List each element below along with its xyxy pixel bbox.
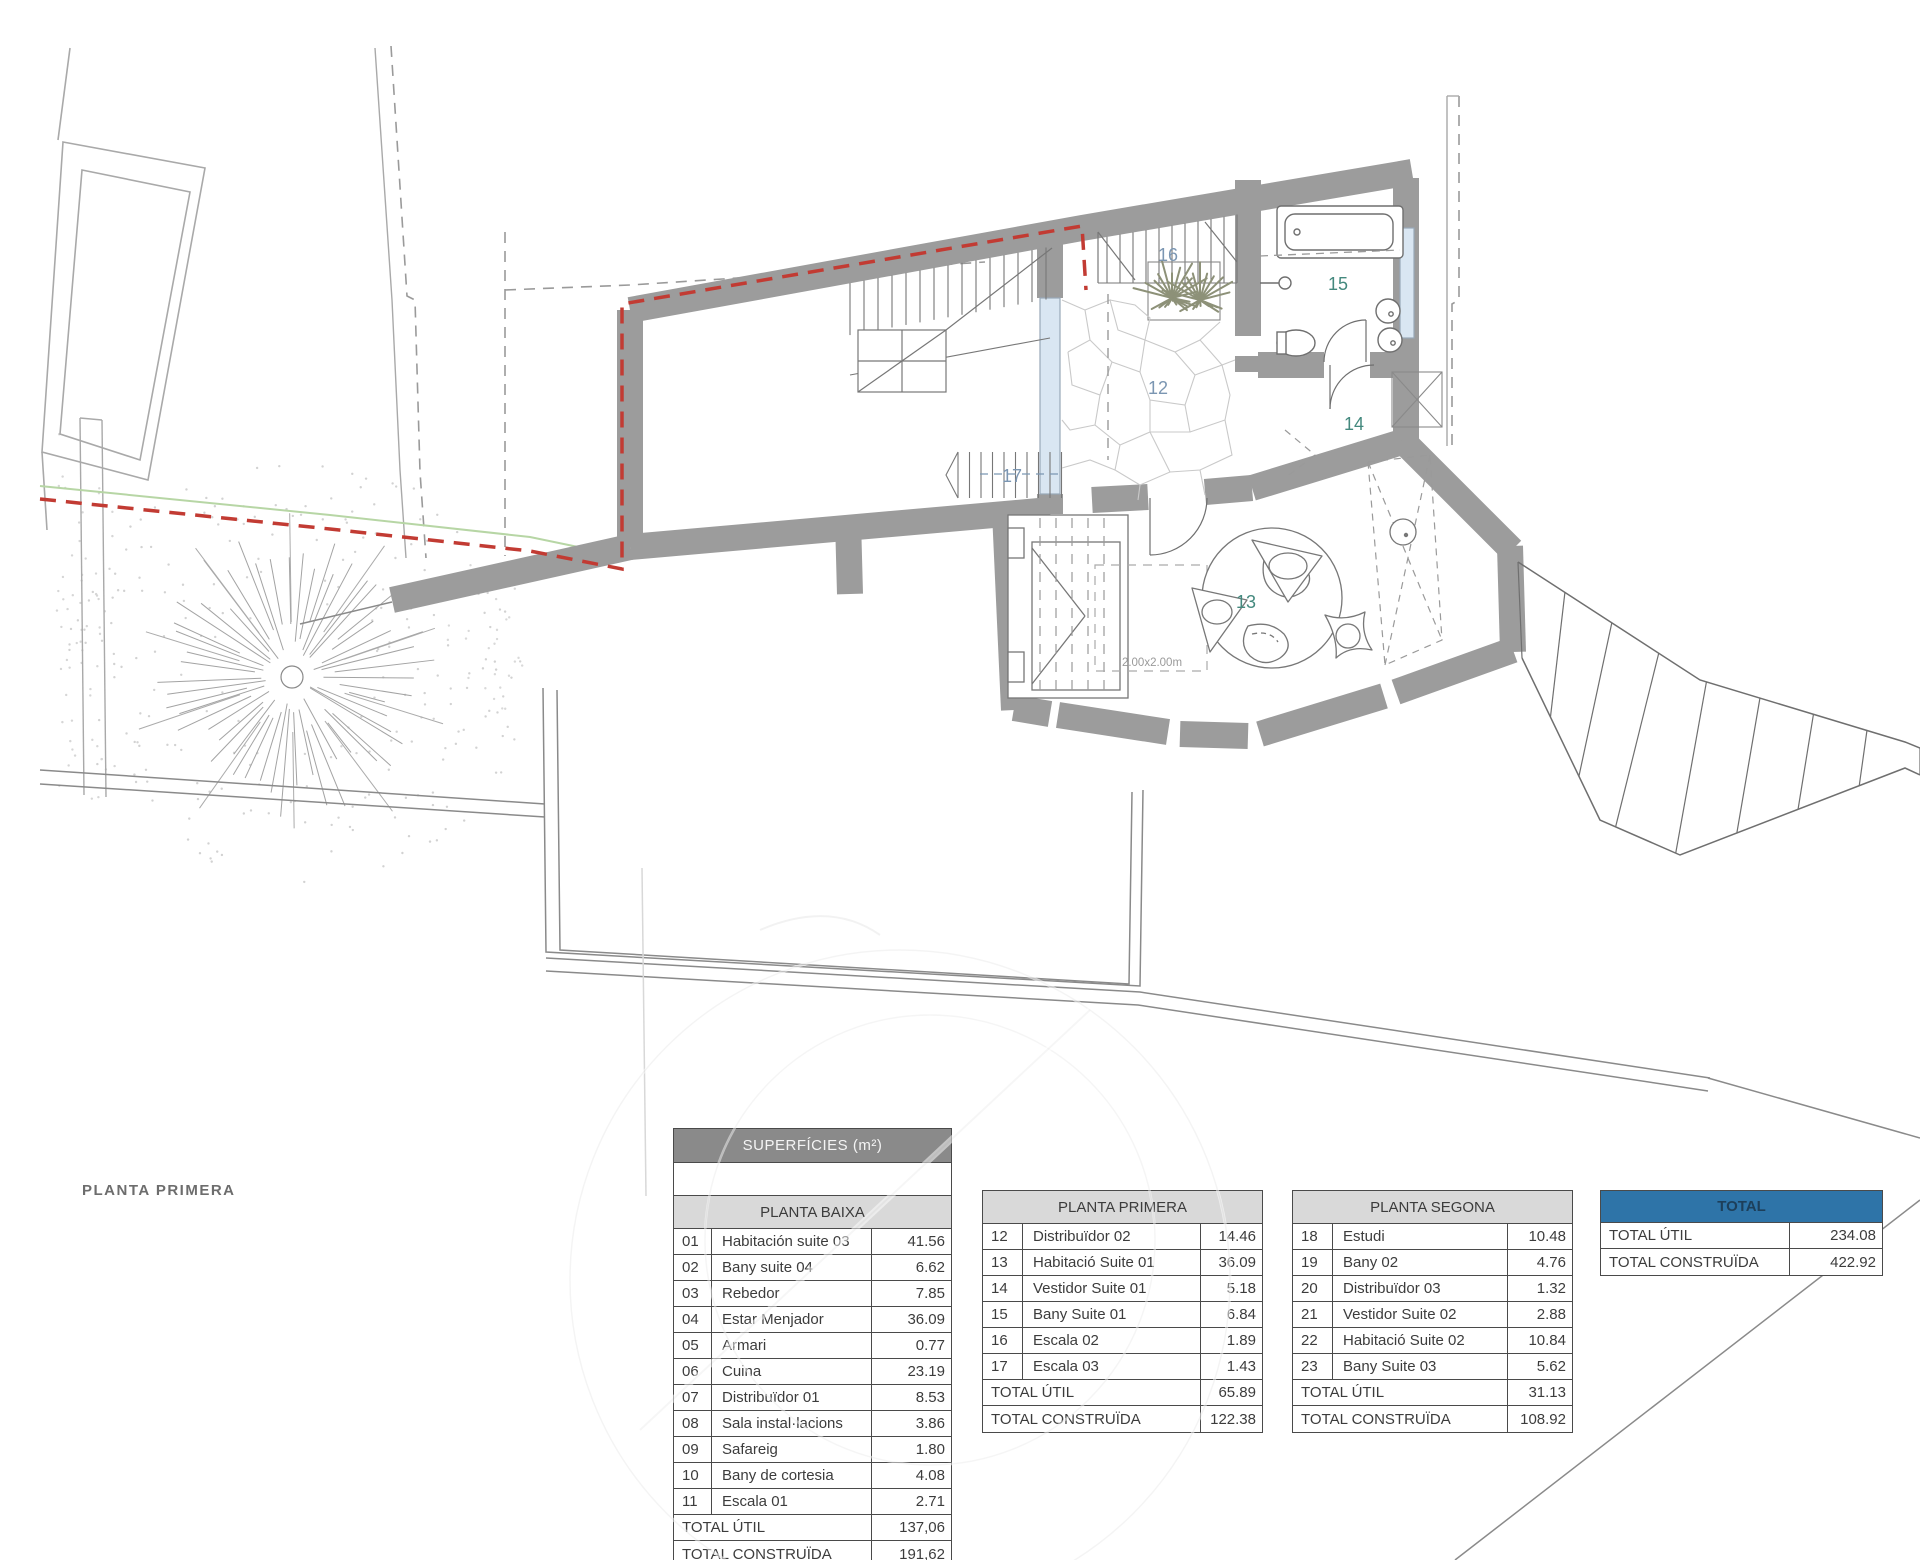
row-number: 19: [1293, 1250, 1333, 1275]
table-gap-row: [674, 1163, 951, 1196]
row-value: 23.19: [871, 1359, 951, 1384]
row-value: 8.53: [871, 1385, 951, 1410]
room-label-13: 13: [1236, 592, 1256, 612]
row-label: Distribuïdor 01: [712, 1385, 871, 1410]
table-row: 08Sala instal·lacions3.86: [674, 1411, 951, 1437]
row-number: 07: [674, 1385, 712, 1410]
table-row: 12Distribuïdor 0214.46: [983, 1224, 1262, 1250]
row-value: 2.71: [871, 1489, 951, 1514]
table-total-header: TOTAL: [1601, 1191, 1882, 1223]
row-label: Habitació Suite 02: [1333, 1328, 1507, 1353]
tree-symbol: [139, 513, 443, 828]
table-superficies-header: SUPERFÍCIES (m²): [674, 1129, 951, 1163]
row-label: Bany Suite 01: [1023, 1302, 1200, 1327]
row-number: 05: [674, 1333, 712, 1358]
ground-stipple-texture: [56, 433, 524, 883]
table-row: 13Habitació Suite 0136.09: [983, 1250, 1262, 1276]
table-row: 02Bany suite 046.62: [674, 1255, 951, 1281]
row-number: 11: [674, 1489, 712, 1514]
row-label: Vestidor Suite 02: [1333, 1302, 1507, 1327]
row-label: Armari: [712, 1333, 871, 1358]
row-number: 15: [983, 1302, 1023, 1327]
table-row: 17Escala 031.43: [983, 1354, 1262, 1380]
room-label-12: 12: [1148, 378, 1168, 398]
row-number: 04: [674, 1307, 712, 1332]
row-number: 16: [983, 1328, 1023, 1353]
row-value: 2.88: [1507, 1302, 1572, 1327]
total-label: TOTAL ÚTIL: [983, 1380, 1200, 1405]
row-label: Sala instal·lacions: [712, 1411, 871, 1436]
row-number: 01: [674, 1229, 712, 1254]
table-rows: 12Distribuïdor 0214.4613Habitació Suite …: [983, 1224, 1262, 1380]
bed: [1008, 515, 1128, 698]
table-rows: 01Habitación suite 0341.5602Bany suite 0…: [674, 1229, 951, 1515]
row-label: Safareig: [712, 1437, 871, 1462]
room-label-17: 17: [1002, 466, 1022, 486]
table-total-row: TOTAL CONSTRUÏDA122.38: [983, 1406, 1262, 1432]
total-value: 122.38: [1200, 1406, 1262, 1432]
row-value: 41.56: [871, 1229, 951, 1254]
table-total-row: TOTAL CONSTRUÏDA191,62: [674, 1541, 951, 1560]
row-number: 09: [674, 1437, 712, 1462]
row-number: 18: [1293, 1224, 1333, 1249]
row-value: 4.76: [1507, 1250, 1572, 1275]
table-row: 20Distribuïdor 031.32: [1293, 1276, 1572, 1302]
row-label: Habitación suite 03: [712, 1229, 871, 1254]
table-row: 18Estudi10.48: [1293, 1224, 1572, 1250]
table-row: 10Bany de cortesia4.08: [674, 1463, 951, 1489]
row-label: Escala 02: [1023, 1328, 1200, 1353]
row-value: 5.62: [1507, 1354, 1572, 1379]
total-value: 191,62: [871, 1541, 951, 1560]
row-label: Estar Menjador: [712, 1307, 871, 1332]
row-number: 20: [1293, 1276, 1333, 1301]
table-row: 14Vestidor Suite 015.18: [983, 1276, 1262, 1302]
total-label: TOTAL CONSTRUÏDA: [674, 1541, 871, 1560]
table-row: 06Cuina23.19: [674, 1359, 951, 1385]
floor-plan-drawing: 12 13 14 15 16 17 2.00x2.00m: [0, 0, 1920, 1560]
table-rows: 18Estudi10.4819Bany 024.7620Distribuïdor…: [1293, 1224, 1572, 1380]
table-row: 04Estar Menjador36.09: [674, 1307, 951, 1333]
row-label: Distribuïdor 03: [1333, 1276, 1507, 1301]
row-label: Habitació Suite 01: [1023, 1250, 1200, 1275]
table-planta-baixa-subheader: PLANTA BAIXA: [674, 1196, 951, 1229]
terrace-drain-dot: [1404, 533, 1408, 537]
table-total-row: TOTAL ÚTIL31.13: [1293, 1380, 1572, 1406]
table-planta-baixa: SUPERFÍCIES (m²) PLANTA BAIXA 01Habitaci…: [673, 1128, 952, 1560]
row-label: Escala 03: [1023, 1354, 1200, 1379]
table-row: 05Armari0.77: [674, 1333, 951, 1359]
row-number: 23: [1293, 1354, 1333, 1379]
row-value: 6.84: [1200, 1302, 1262, 1327]
room14-door: [1330, 365, 1374, 409]
table-row: 23Bany Suite 035.62: [1293, 1354, 1572, 1380]
table-planta-primera: PLANTA PRIMERA 12Distribuïdor 0214.4613H…: [982, 1190, 1263, 1433]
row-number: 17: [983, 1354, 1023, 1379]
green-boundary-line: [40, 486, 612, 554]
total-label: TOTAL CONSTRUÏDA: [1293, 1406, 1507, 1432]
table-total-row: TOTAL CONSTRUÏDA108.92: [1293, 1406, 1572, 1432]
terrain-lines: [40, 602, 1920, 1560]
total-value: 234.08: [1789, 1223, 1882, 1248]
row-label: Distribuïdor 02: [1023, 1224, 1200, 1249]
row-value: 1.32: [1507, 1276, 1572, 1301]
row-value: 10.48: [1507, 1224, 1572, 1249]
table-row: 09Safareig1.80: [674, 1437, 951, 1463]
bath-door: [1324, 320, 1366, 362]
table-total-row: TOTAL ÚTIL137,06: [674, 1515, 951, 1541]
total-value: 108.92: [1507, 1406, 1572, 1432]
table-row: 21Vestidor Suite 022.88: [1293, 1302, 1572, 1328]
terrace-drain: [1390, 519, 1416, 545]
row-label: Rebedor: [712, 1281, 871, 1306]
row-number: 10: [674, 1463, 712, 1488]
total-value: 422.92: [1789, 1249, 1882, 1275]
row-number: 22: [1293, 1328, 1333, 1353]
table-row: 07Distribuïdor 018.53: [674, 1385, 951, 1411]
total-label: TOTAL ÚTIL: [674, 1515, 871, 1540]
row-value: 1.43: [1200, 1354, 1262, 1379]
table-planta-segona-subheader: PLANTA SEGONA: [1293, 1191, 1572, 1224]
row-value: 3.86: [871, 1411, 951, 1436]
table-total-row: TOTAL ÚTIL65.89: [983, 1380, 1262, 1406]
row-number: 13: [983, 1250, 1023, 1275]
table-total: TOTAL TOTAL ÚTIL234.08TOTAL CONSTRUÏDA42…: [1600, 1190, 1883, 1276]
table-total-row: TOTAL ÚTIL234.08: [1601, 1223, 1882, 1249]
table-row: 01Habitación suite 0341.56: [674, 1229, 951, 1255]
bath-faucet: [1260, 277, 1291, 289]
table-totals: TOTAL ÚTIL65.89TOTAL CONSTRUÏDA122.38: [983, 1380, 1262, 1432]
total-value: 65.89: [1200, 1380, 1262, 1405]
total-value: 31.13: [1507, 1380, 1572, 1405]
row-number: 21: [1293, 1302, 1333, 1327]
row-number: 03: [674, 1281, 712, 1306]
row-number: 12: [983, 1224, 1023, 1249]
row-label: Bany de cortesia: [712, 1463, 871, 1488]
total-label: TOTAL ÚTIL: [1601, 1223, 1789, 1248]
table-planta-segona: PLANTA SEGONA 18Estudi10.4819Bany 024.76…: [1292, 1190, 1573, 1433]
planter-palms: [1134, 261, 1233, 320]
row-number: 06: [674, 1359, 712, 1384]
row-number: 08: [674, 1411, 712, 1436]
room-label-14: 14: [1344, 414, 1364, 434]
row-value: 36.09: [871, 1307, 951, 1332]
row-value: 0.77: [871, 1333, 951, 1358]
row-value: 36.09: [1200, 1250, 1262, 1275]
table-totals: TOTAL ÚTIL234.08TOTAL CONSTRUÏDA422.92: [1601, 1223, 1882, 1275]
floor-plan-sheet: 12 13 14 15 16 17 2.00x2.00m PLANTA PRIM…: [0, 0, 1920, 1560]
room-label-16: 16: [1158, 245, 1178, 265]
row-label: Bany 02: [1333, 1250, 1507, 1275]
table-row: 11Escala 012.71: [674, 1489, 951, 1515]
toilet: [1277, 330, 1315, 356]
neighbor-building-outline: [42, 48, 205, 530]
row-label: Cuina: [712, 1359, 871, 1384]
total-value: 137,06: [871, 1515, 951, 1540]
sheet-title: PLANTA PRIMERA: [82, 1182, 236, 1199]
row-number: 14: [983, 1276, 1023, 1301]
row-label: Bany Suite 03: [1333, 1354, 1507, 1379]
row-value: 4.08: [871, 1463, 951, 1488]
row-value: 1.89: [1200, 1328, 1262, 1353]
table-totals: TOTAL ÚTIL31.13TOTAL CONSTRUÏDA108.92: [1293, 1380, 1572, 1432]
dimension-label: 2.00x2.00m: [1122, 657, 1182, 669]
bathtub: [1277, 206, 1403, 258]
table-row: 19Bany 024.76: [1293, 1250, 1572, 1276]
row-number: 02: [674, 1255, 712, 1280]
table-planta-primera-subheader: PLANTA PRIMERA: [983, 1191, 1262, 1224]
row-label: Escala 01: [712, 1489, 871, 1514]
table-row: 03Rebedor7.85: [674, 1281, 951, 1307]
row-value: 1.80: [871, 1437, 951, 1462]
row-value: 10.84: [1507, 1328, 1572, 1353]
exterior-steps-fan: [1518, 562, 1920, 855]
flagstone-paving: [1062, 300, 1235, 500]
total-label: TOTAL ÚTIL: [1293, 1380, 1507, 1405]
row-value: 5.18: [1200, 1276, 1262, 1301]
hall-door: [1150, 498, 1207, 555]
row-value: 7.85: [871, 1281, 951, 1306]
row-label: Vestidor Suite 01: [1023, 1276, 1200, 1301]
table-row: 16Escala 021.89: [983, 1328, 1262, 1354]
total-label: TOTAL CONSTRUÏDA: [1601, 1249, 1789, 1275]
table-totals: TOTAL ÚTIL137,06TOTAL CONSTRUÏDA191,62: [674, 1515, 951, 1560]
table-row: 22Habitació Suite 0210.84: [1293, 1328, 1572, 1354]
row-value: 6.62: [871, 1255, 951, 1280]
table-row: 15Bany Suite 016.84: [983, 1302, 1262, 1328]
table-total-row: TOTAL CONSTRUÏDA422.92: [1601, 1249, 1882, 1275]
total-label: TOTAL CONSTRUÏDA: [983, 1406, 1200, 1432]
room-label-15: 15: [1328, 274, 1348, 294]
row-label: Estudi: [1333, 1224, 1507, 1249]
row-value: 14.46: [1200, 1224, 1262, 1249]
row-label: Bany suite 04: [712, 1255, 871, 1280]
